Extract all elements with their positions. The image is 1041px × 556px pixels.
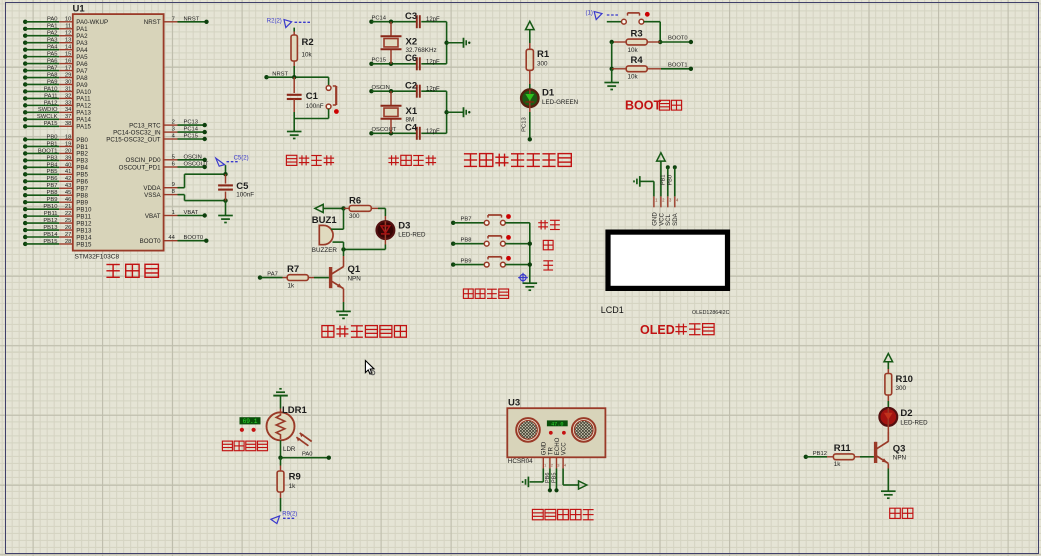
svg-text:X1: X1 bbox=[406, 106, 418, 117]
svg-text:PB13: PB13 bbox=[76, 227, 92, 234]
svg-text:PA5: PA5 bbox=[47, 52, 58, 58]
svg-text:PB0: PB0 bbox=[76, 137, 88, 144]
svg-text:3: 3 bbox=[557, 463, 560, 468]
svg-text:PA9: PA9 bbox=[47, 79, 58, 85]
svg-text:NPN: NPN bbox=[893, 455, 907, 462]
svg-text:18: 18 bbox=[65, 134, 71, 140]
svg-text:PB6: PB6 bbox=[47, 176, 58, 182]
svg-text:3: 3 bbox=[669, 197, 672, 202]
svg-text:PA11: PA11 bbox=[76, 96, 91, 103]
svg-text:D3: D3 bbox=[398, 220, 410, 231]
svg-text:PA15: PA15 bbox=[76, 124, 91, 131]
svg-text:1k: 1k bbox=[834, 461, 842, 468]
svg-text:R4: R4 bbox=[631, 55, 644, 66]
svg-text:PA11: PA11 bbox=[44, 93, 57, 99]
svg-text:45: 45 bbox=[65, 190, 71, 196]
svg-text:R3: R3 bbox=[631, 28, 643, 39]
svg-text:VCC: VCC bbox=[561, 442, 568, 455]
svg-text:22: 22 bbox=[65, 211, 71, 217]
svg-text:R2(2): R2(2) bbox=[267, 19, 282, 25]
svg-text:28: 28 bbox=[65, 239, 71, 245]
svg-text:C1: C1 bbox=[306, 91, 319, 102]
svg-text:27: 27 bbox=[65, 232, 71, 238]
svg-text:PB12: PB12 bbox=[43, 218, 57, 224]
svg-text:PA4: PA4 bbox=[76, 47, 88, 54]
svg-text:LDR: LDR bbox=[283, 446, 296, 453]
svg-text:PA7: PA7 bbox=[47, 65, 58, 71]
svg-text:33: 33 bbox=[65, 100, 71, 106]
svg-text:OLED: OLED bbox=[640, 323, 675, 337]
svg-text:21: 21 bbox=[65, 204, 71, 210]
svg-text:SWDIO: SWDIO bbox=[38, 107, 58, 113]
svg-text:16: 16 bbox=[65, 58, 71, 64]
svg-text:8: 8 bbox=[172, 189, 175, 195]
svg-text:LED-GREEN: LED-GREEN bbox=[542, 99, 578, 106]
svg-text:BUZ1: BUZ1 bbox=[312, 215, 338, 226]
svg-text:OSCIN: OSCIN bbox=[372, 85, 390, 91]
svg-text:NRST: NRST bbox=[144, 19, 161, 26]
svg-text:69.1: 69.1 bbox=[243, 418, 258, 425]
svg-text:U3: U3 bbox=[508, 398, 520, 409]
svg-text:PB1: PB1 bbox=[76, 144, 88, 151]
svg-text:NRST: NRST bbox=[272, 71, 288, 77]
svg-text:R7: R7 bbox=[287, 264, 299, 275]
svg-text:PA3: PA3 bbox=[47, 38, 58, 44]
svg-text:PA13: PA13 bbox=[76, 110, 91, 117]
svg-text:PB14: PB14 bbox=[76, 234, 92, 241]
svg-text:32.768KHz: 32.768KHz bbox=[406, 47, 437, 54]
svg-text:R9: R9 bbox=[289, 471, 301, 482]
svg-text:PA12: PA12 bbox=[76, 103, 91, 110]
svg-text:47.0: 47.0 bbox=[551, 421, 563, 427]
svg-text:R11: R11 bbox=[834, 443, 852, 454]
svg-text:9: 9 bbox=[172, 182, 175, 188]
svg-text:PB4: PB4 bbox=[76, 165, 88, 172]
svg-text:PC13_RTC: PC13_RTC bbox=[129, 122, 161, 129]
svg-text:PB11: PB11 bbox=[44, 211, 58, 217]
svg-text:PA2: PA2 bbox=[76, 33, 88, 40]
svg-text:PA4: PA4 bbox=[47, 45, 58, 51]
svg-text:37: 37 bbox=[65, 114, 71, 120]
svg-text:1: 1 bbox=[544, 463, 547, 468]
svg-text:VSSA: VSSA bbox=[144, 192, 161, 199]
svg-text:11: 11 bbox=[65, 24, 71, 30]
svg-text:12pF: 12pF bbox=[426, 87, 440, 93]
svg-text:PB12: PB12 bbox=[813, 451, 827, 457]
svg-text:Q1: Q1 bbox=[348, 264, 361, 275]
svg-text:1k: 1k bbox=[288, 283, 296, 290]
svg-text:R1: R1 bbox=[537, 49, 550, 60]
svg-text:PB0: PB0 bbox=[47, 134, 58, 140]
svg-text:PB6: PB6 bbox=[76, 179, 88, 186]
svg-text:1: 1 bbox=[172, 210, 175, 216]
svg-text:10k: 10k bbox=[302, 52, 313, 59]
svg-text:LED-RED: LED-RED bbox=[398, 232, 426, 239]
svg-text:44: 44 bbox=[168, 235, 175, 241]
svg-text:LED-RED: LED-RED bbox=[900, 419, 928, 426]
svg-text:(1): (1) bbox=[586, 11, 593, 17]
svg-text:4: 4 bbox=[564, 463, 567, 468]
svg-text:STM32F103C8: STM32F103C8 bbox=[75, 254, 120, 261]
svg-text:43: 43 bbox=[65, 183, 71, 189]
svg-text:PB15: PB15 bbox=[43, 239, 57, 245]
svg-text:U1: U1 bbox=[73, 4, 86, 15]
svg-text:PB10: PB10 bbox=[43, 204, 57, 210]
svg-text:R6: R6 bbox=[349, 195, 361, 206]
svg-text:42: 42 bbox=[65, 176, 71, 182]
svg-text:PB0: PB0 bbox=[667, 175, 673, 185]
svg-text:PB4: PB4 bbox=[47, 162, 59, 168]
svg-text:2: 2 bbox=[662, 197, 665, 202]
svg-text:PB11: PB11 bbox=[76, 213, 91, 220]
svg-text:OSCOUT_PD1: OSCOUT_PD1 bbox=[119, 164, 162, 171]
svg-text:100nF: 100nF bbox=[306, 103, 324, 110]
svg-text:12pF: 12pF bbox=[426, 17, 440, 23]
svg-text:PA1: PA1 bbox=[47, 24, 58, 30]
svg-text:X2: X2 bbox=[406, 36, 418, 47]
svg-text:PA12: PA12 bbox=[44, 100, 58, 106]
svg-text:SCL: SCL bbox=[665, 213, 672, 225]
svg-text:BOOT1: BOOT1 bbox=[668, 62, 688, 68]
svg-text:17: 17 bbox=[65, 65, 71, 71]
svg-text:31: 31 bbox=[65, 86, 71, 92]
svg-text:12pF: 12pF bbox=[426, 59, 440, 65]
svg-text:PB8: PB8 bbox=[461, 238, 472, 244]
svg-text:32: 32 bbox=[65, 93, 71, 99]
svg-text:HCSR04: HCSR04 bbox=[508, 458, 533, 465]
svg-text:PC13: PC13 bbox=[522, 117, 528, 132]
svg-text:D1: D1 bbox=[542, 88, 555, 99]
svg-text:10: 10 bbox=[65, 17, 71, 23]
svg-text:PB9: PB9 bbox=[76, 199, 88, 206]
svg-text:C3: C3 bbox=[405, 11, 417, 22]
svg-text:C5(2): C5(2) bbox=[234, 156, 249, 162]
svg-text:PA14: PA14 bbox=[76, 117, 91, 124]
svg-text:6: 6 bbox=[172, 162, 175, 168]
svg-text:SWCLK: SWCLK bbox=[37, 114, 58, 120]
svg-text:2: 2 bbox=[551, 463, 554, 468]
svg-text:R10: R10 bbox=[896, 374, 913, 385]
svg-text:PB10: PB10 bbox=[76, 206, 92, 213]
svg-text:BUZZER: BUZZER bbox=[312, 247, 338, 254]
svg-text:C5: C5 bbox=[236, 181, 249, 192]
svg-text:25: 25 bbox=[65, 218, 71, 224]
svg-text:SDA: SDA bbox=[672, 212, 679, 225]
svg-text:Q3: Q3 bbox=[893, 443, 906, 454]
svg-text:PB5: PB5 bbox=[552, 473, 558, 483]
svg-text:R2: R2 bbox=[302, 37, 314, 48]
svg-text:PB1: PB1 bbox=[47, 141, 58, 147]
svg-text:PB12: PB12 bbox=[76, 220, 92, 227]
svg-text:PB3: PB3 bbox=[76, 158, 88, 165]
svg-text:20: 20 bbox=[65, 148, 71, 154]
svg-text:PB13: PB13 bbox=[43, 225, 57, 231]
svg-text:OSCOUT: OSCOUT bbox=[372, 127, 397, 133]
svg-text:PA7: PA7 bbox=[267, 272, 278, 278]
svg-text:PA2: PA2 bbox=[47, 31, 58, 37]
svg-text:PA15: PA15 bbox=[44, 121, 58, 127]
svg-text:PC14: PC14 bbox=[372, 15, 387, 21]
svg-text:PA5: PA5 bbox=[76, 54, 88, 61]
svg-text:1k: 1k bbox=[289, 483, 297, 490]
svg-text:300: 300 bbox=[349, 213, 360, 220]
svg-text:PB6: PB6 bbox=[545, 473, 551, 483]
svg-text:PA0: PA0 bbox=[47, 17, 58, 23]
svg-text:39: 39 bbox=[65, 155, 71, 161]
svg-text:PC15-OSC32_OUT: PC15-OSC32_OUT bbox=[106, 136, 161, 143]
svg-text:5: 5 bbox=[172, 154, 175, 160]
svg-text:LDR1: LDR1 bbox=[282, 405, 308, 416]
svg-text:D2: D2 bbox=[900, 408, 912, 419]
svg-text:R9(2): R9(2) bbox=[282, 512, 297, 518]
svg-text:29: 29 bbox=[65, 72, 71, 78]
svg-text:300: 300 bbox=[896, 385, 907, 392]
svg-text:4: 4 bbox=[676, 197, 679, 202]
svg-text:PA1: PA1 bbox=[76, 26, 88, 33]
svg-text:C6: C6 bbox=[405, 53, 417, 64]
svg-text:PB7: PB7 bbox=[47, 183, 58, 189]
svg-text:PB8: PB8 bbox=[47, 190, 58, 196]
svg-text:PA8: PA8 bbox=[47, 72, 58, 78]
svg-text:OLED12864I2C: OLED12864I2C bbox=[692, 310, 730, 316]
svg-text:PB9: PB9 bbox=[47, 197, 58, 203]
svg-text:PB7: PB7 bbox=[461, 217, 472, 223]
svg-text:7: 7 bbox=[172, 16, 175, 22]
svg-text:PA9: PA9 bbox=[76, 82, 88, 89]
svg-text:PB5: PB5 bbox=[76, 172, 88, 179]
svg-text:PB14: PB14 bbox=[43, 232, 58, 238]
svg-text:26: 26 bbox=[65, 225, 71, 231]
svg-text:14: 14 bbox=[65, 45, 72, 51]
svg-text:15: 15 bbox=[65, 52, 71, 58]
svg-text:PA8: PA8 bbox=[76, 75, 88, 82]
svg-text:10k: 10k bbox=[628, 47, 639, 54]
svg-text:12: 12 bbox=[65, 31, 71, 37]
svg-text:PB7: PB7 bbox=[76, 186, 88, 193]
svg-text:40: 40 bbox=[65, 162, 71, 168]
svg-text:PB15: PB15 bbox=[76, 241, 92, 248]
svg-text:PB5: PB5 bbox=[47, 169, 58, 175]
svg-text:PB3: PB3 bbox=[47, 155, 58, 161]
svg-text:34: 34 bbox=[65, 107, 72, 113]
svg-text:2: 2 bbox=[172, 120, 175, 126]
svg-text:46: 46 bbox=[65, 197, 71, 203]
svg-text:PA0: PA0 bbox=[302, 452, 313, 458]
svg-text:C4: C4 bbox=[405, 123, 418, 134]
svg-text:PB1: PB1 bbox=[660, 175, 666, 185]
svg-text:PA0-WKUP: PA0-WKUP bbox=[76, 19, 108, 26]
svg-text:LCD1: LCD1 bbox=[601, 305, 624, 315]
svg-text:1: 1 bbox=[655, 197, 658, 202]
svg-text:12pF: 12pF bbox=[426, 129, 440, 135]
svg-text:NPN: NPN bbox=[348, 275, 362, 282]
svg-text:13: 13 bbox=[65, 38, 71, 44]
svg-text:PA6: PA6 bbox=[76, 61, 88, 68]
svg-text:38: 38 bbox=[65, 121, 71, 127]
svg-text:BOOT: BOOT bbox=[625, 99, 661, 113]
svg-text:19: 19 bbox=[65, 141, 71, 147]
svg-text:PB8: PB8 bbox=[76, 193, 88, 200]
svg-text:GND: GND bbox=[651, 212, 658, 226]
svg-text:BOOT0: BOOT0 bbox=[140, 238, 162, 245]
svg-text:30: 30 bbox=[65, 79, 71, 85]
svg-text:PA10: PA10 bbox=[76, 89, 91, 96]
svg-text:PB2: PB2 bbox=[76, 151, 88, 158]
svg-text:PA6: PA6 bbox=[47, 58, 58, 64]
svg-text:41: 41 bbox=[65, 169, 71, 175]
svg-text:3: 3 bbox=[172, 127, 175, 133]
svg-text:BOOT1: BOOT1 bbox=[38, 148, 58, 154]
svg-text:PA7: PA7 bbox=[76, 68, 88, 75]
svg-text:BOOT0: BOOT0 bbox=[668, 36, 688, 42]
svg-text:C2: C2 bbox=[405, 80, 417, 91]
svg-text:PA10: PA10 bbox=[44, 86, 58, 92]
svg-text:8M: 8M bbox=[406, 116, 415, 123]
svg-text:PB9: PB9 bbox=[461, 258, 472, 264]
svg-text:VBAT: VBAT bbox=[145, 213, 161, 220]
svg-text:PC15: PC15 bbox=[372, 58, 387, 64]
svg-text:OSCIN_PD0: OSCIN_PD0 bbox=[126, 157, 162, 164]
svg-text:PA3: PA3 bbox=[76, 40, 88, 47]
svg-text:10k: 10k bbox=[628, 74, 639, 81]
svg-text:300: 300 bbox=[537, 61, 548, 68]
svg-text:100nF: 100nF bbox=[236, 192, 254, 199]
